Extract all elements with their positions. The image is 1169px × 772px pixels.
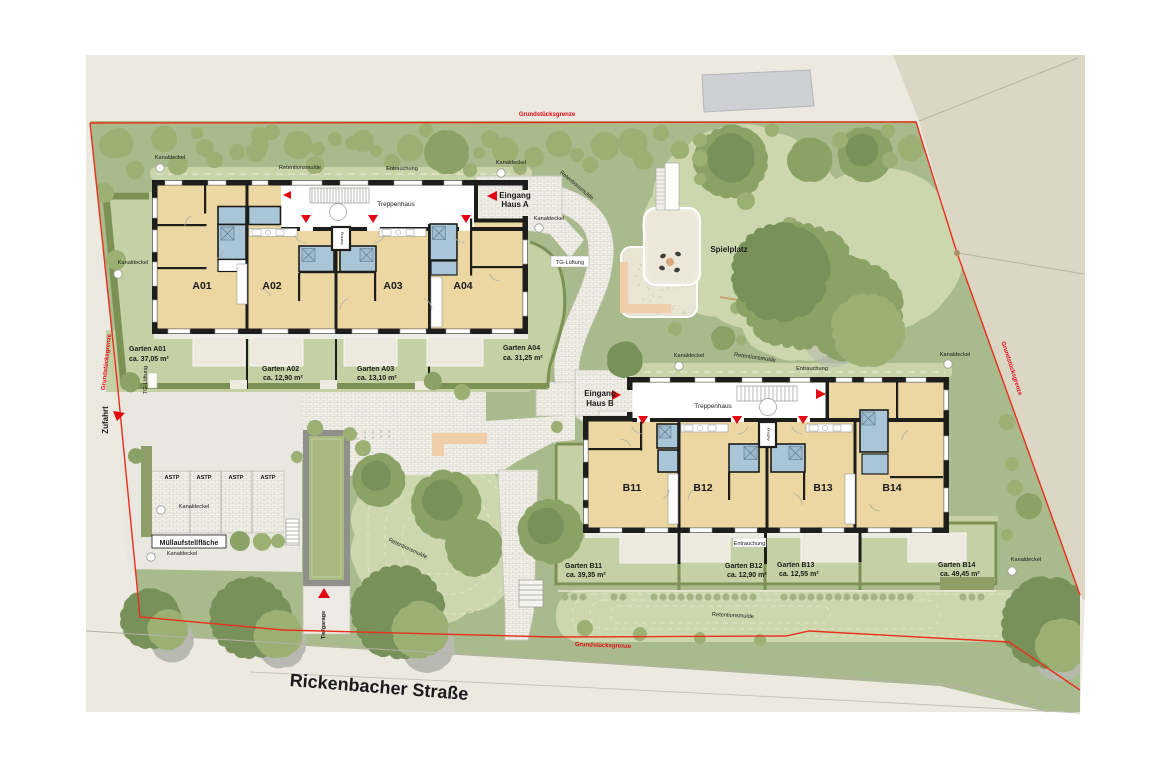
svg-text:ca. 12,90 m²: ca. 12,90 m² [263,375,303,382]
svg-text:ca. 12,55 m²: ca. 12,55 m² [779,571,819,578]
svg-text:ASTP: ASTP [197,475,212,481]
svg-text:ASTP: ASTP [165,475,180,481]
svg-text:Kanaldeckel: Kanaldeckel [1011,557,1041,563]
svg-text:ca. 37,05 m²: ca. 37,05 m² [129,356,169,363]
svg-text:Eingang: Eingang [584,389,616,398]
svg-text:Garten A03: Garten A03 [357,366,394,373]
svg-text:B12: B12 [693,482,712,494]
svg-text:Garten B12: Garten B12 [725,563,762,570]
svg-text:Entrauchung: Entrauchung [734,541,766,547]
svg-text:A03: A03 [383,280,402,292]
svg-text:Kanaldeckel: Kanaldeckel [534,216,564,222]
svg-text:Garten B11: Garten B11 [565,563,602,570]
svg-text:A04: A04 [453,280,472,292]
svg-text:A01: A01 [192,280,211,292]
svg-text:Garten B13: Garten B13 [777,562,814,569]
svg-text:Müllaufstellfläche: Müllaufstellfläche [160,540,219,547]
svg-text:Zufahrt: Zufahrt [101,406,110,434]
svg-text:Kanaldeckel: Kanaldeckel [179,504,209,510]
svg-text:Garten B14: Garten B14 [938,562,975,569]
svg-text:B14: B14 [882,482,901,494]
svg-text:ASTP: ASTP [229,475,244,481]
svg-text:Kanaldeckel: Kanaldeckel [496,160,526,166]
svg-text:Entrauchung: Entrauchung [796,366,828,372]
svg-text:Treppenhaus: Treppenhaus [377,201,414,208]
svg-text:ca. 39,35 m²: ca. 39,35 m² [566,572,606,579]
svg-text:Aufzug: Aufzug [766,428,771,440]
svg-text:Treppenhaus: Treppenhaus [694,403,731,410]
svg-text:ca. 31,25 m²: ca. 31,25 m² [503,355,543,362]
svg-text:TG-Lüftung: TG-Lüftung [556,260,584,266]
svg-text:B13: B13 [813,482,832,494]
svg-text:Kanaldeckel: Kanaldeckel [940,352,970,358]
svg-text:ca. 13,10 m²: ca. 13,10 m² [357,375,397,382]
svg-text:Tiefgarage: Tiefgarage [321,611,327,639]
svg-text:B11: B11 [623,482,642,494]
svg-text:A02: A02 [262,280,281,292]
svg-text:ca. 49,45 m²: ca. 49,45 m² [940,571,980,578]
svg-text:Garten A04: Garten A04 [503,345,540,352]
svg-text:Haus A: Haus A [501,200,528,209]
svg-text:Eingang: Eingang [499,191,531,200]
svg-text:Kanaldeckel: Kanaldeckel [674,353,704,359]
svg-text:ca. 12,90 m²: ca. 12,90 m² [727,572,767,579]
svg-text:Grundstücksgrenze: Grundstücksgrenze [519,112,576,118]
svg-text:Garten A02: Garten A02 [262,366,299,373]
svg-text:Spielplatz: Spielplatz [710,245,747,254]
svg-text:Garten A01: Garten A01 [129,346,166,353]
svg-text:Aufzug: Aufzug [339,232,344,244]
svg-text:ASTP: ASTP [261,475,276,481]
svg-text:TG-Lüftung: TG-Lüftung [143,366,149,394]
svg-text:Kanaldeckel: Kanaldeckel [167,551,197,557]
svg-text:Haus B: Haus B [586,399,614,408]
svg-text:Entrauchung: Entrauchung [386,166,418,172]
svg-text:Kanaldeckel: Kanaldeckel [118,260,148,266]
svg-text:Retentionsmulde: Retentionsmulde [279,165,321,171]
svg-text:Kanaldeckel: Kanaldeckel [155,155,185,161]
